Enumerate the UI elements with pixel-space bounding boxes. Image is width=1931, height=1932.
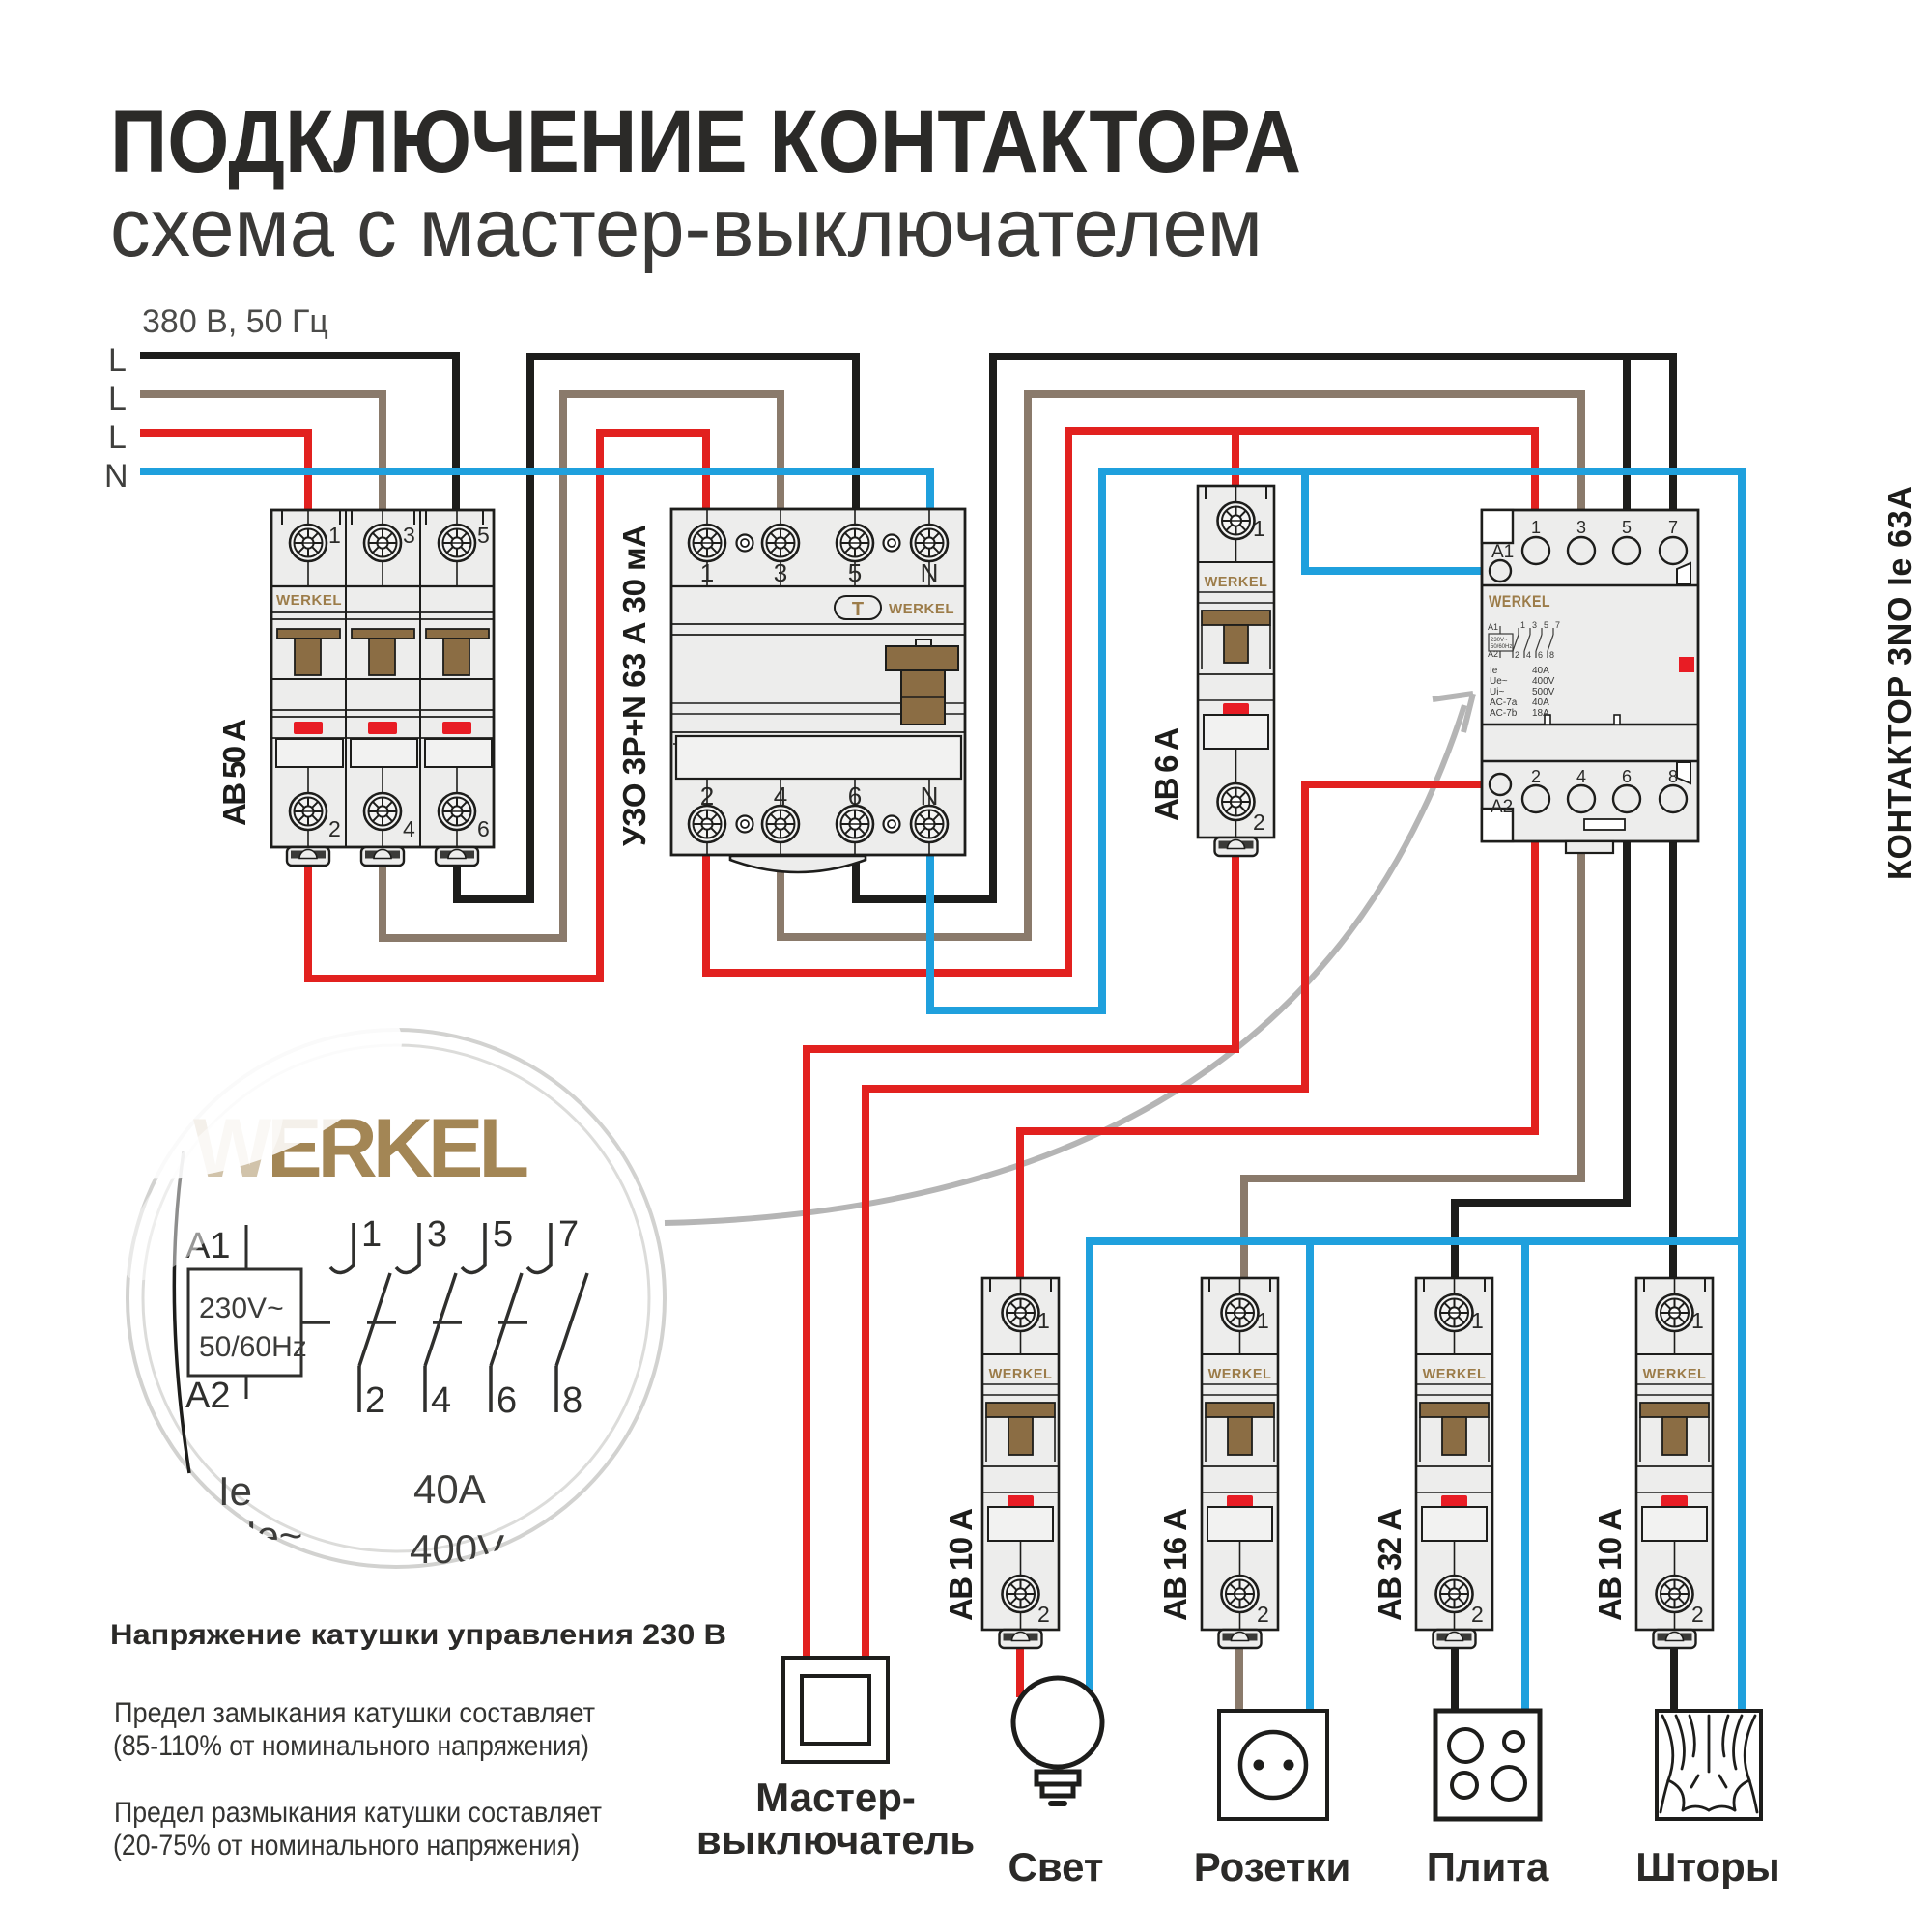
svg-text:2: 2 xyxy=(328,816,341,841)
svg-text:4: 4 xyxy=(1576,767,1586,786)
svg-text:5: 5 xyxy=(1622,518,1632,537)
svg-text:L: L xyxy=(108,419,127,456)
svg-text:5: 5 xyxy=(1544,620,1548,630)
svg-text:(20-75% от номинального напряж: (20-75% от номинального напряжения) xyxy=(113,1830,580,1861)
svg-text:Шторы: Шторы xyxy=(1635,1844,1779,1889)
svg-text:6: 6 xyxy=(1622,767,1632,786)
svg-text:5: 5 xyxy=(493,1214,513,1255)
svg-text:1: 1 xyxy=(361,1214,382,1255)
svg-text:A2: A2 xyxy=(185,1376,230,1416)
svg-text:3: 3 xyxy=(1576,518,1586,537)
svg-text:50/60Hz: 50/60Hz xyxy=(199,1331,307,1363)
svg-text:АВ 32 А: АВ 32 А xyxy=(1372,1508,1407,1621)
svg-text:6: 6 xyxy=(477,816,490,841)
svg-text:АВ 16 А: АВ 16 А xyxy=(1157,1508,1193,1621)
svg-text:50/60Hz: 50/60Hz xyxy=(1491,644,1512,650)
svg-text:Розетки: Розетки xyxy=(1194,1844,1351,1889)
svg-text:40A: 40A xyxy=(1532,697,1549,708)
svg-text:Ie: Ie xyxy=(1490,666,1498,676)
svg-text:18A: 18A xyxy=(1532,708,1549,719)
svg-text:схема с мастер-выключателем: схема с мастер-выключателем xyxy=(110,182,1263,274)
svg-text:3: 3 xyxy=(403,523,415,548)
svg-text:Предел замыкания катушки соста: Предел замыкания катушки составляет xyxy=(114,1697,595,1729)
svg-text:Плита: Плита xyxy=(1427,1844,1549,1889)
svg-text:3: 3 xyxy=(1532,620,1537,630)
svg-text:T: T xyxy=(852,599,864,620)
svg-text:AC-7b: AC-7b xyxy=(1490,708,1518,719)
svg-text:6: 6 xyxy=(1538,650,1543,660)
svg-text:Мастер-: Мастер- xyxy=(755,1775,916,1820)
svg-text:7: 7 xyxy=(558,1214,579,1255)
svg-text:5: 5 xyxy=(477,523,490,548)
svg-text:4: 4 xyxy=(1526,650,1531,660)
svg-text:ПОДКЛЮЧЕНИЕ КОНТАКТОРА: ПОДКЛЮЧЕНИЕ КОНТАКТОРА xyxy=(110,93,1301,191)
svg-text:7: 7 xyxy=(1555,620,1560,630)
svg-text:АВ 10 А: АВ 10 А xyxy=(1592,1508,1628,1621)
svg-text:Ie: Ie xyxy=(218,1468,252,1514)
svg-text:4: 4 xyxy=(403,816,415,841)
svg-text:N: N xyxy=(921,558,939,587)
svg-text:40A: 40A xyxy=(1532,666,1549,676)
svg-text:2: 2 xyxy=(1531,767,1541,786)
svg-text:Свет: Свет xyxy=(1008,1844,1104,1889)
svg-text:L: L xyxy=(108,342,127,379)
svg-text:КОНТАКТОР 3NO Ie 63А: КОНТАКТОР 3NO Ie 63А xyxy=(1882,486,1918,880)
svg-text:8: 8 xyxy=(562,1380,582,1421)
svg-text:380 В, 50 Гц: 380 В, 50 Гц xyxy=(142,303,328,340)
svg-text:2: 2 xyxy=(1515,650,1519,660)
svg-text:1: 1 xyxy=(1520,620,1525,630)
svg-text:400V: 400V xyxy=(1532,676,1555,687)
svg-text:(85-110% от номинального напря: (85-110% от номинального напряжения) xyxy=(113,1730,589,1762)
svg-text:230V~: 230V~ xyxy=(1491,638,1508,643)
svg-text:8: 8 xyxy=(1549,650,1554,660)
svg-text:2: 2 xyxy=(365,1380,385,1421)
svg-text:L: L xyxy=(108,381,127,417)
svg-text:7: 7 xyxy=(1668,518,1678,537)
svg-text:6: 6 xyxy=(497,1380,517,1421)
svg-text:40A: 40A xyxy=(413,1466,486,1512)
svg-text:A1: A1 xyxy=(1491,542,1514,562)
svg-text:Ue~: Ue~ xyxy=(1490,676,1508,687)
svg-text:WERKEL: WERKEL xyxy=(1489,592,1550,611)
svg-text:3: 3 xyxy=(427,1214,447,1255)
svg-text:230V~: 230V~ xyxy=(199,1293,284,1324)
svg-text:АВ 6 А: АВ 6 А xyxy=(1149,727,1184,821)
svg-text:WERKEL: WERKEL xyxy=(276,592,342,609)
svg-text:A2: A2 xyxy=(1491,797,1513,817)
svg-text:WERKEL: WERKEL xyxy=(889,601,954,617)
svg-text:A1: A1 xyxy=(1488,622,1498,632)
svg-text:AC-7a: AC-7a xyxy=(1490,697,1518,708)
svg-text:1: 1 xyxy=(328,523,341,548)
svg-text:1: 1 xyxy=(1531,518,1541,537)
svg-text:Ui~: Ui~ xyxy=(1490,687,1504,697)
svg-text:3: 3 xyxy=(774,558,787,587)
svg-text:N: N xyxy=(104,458,128,495)
svg-text:A2: A2 xyxy=(1488,649,1498,659)
svg-text:АВ 10 А: АВ 10 А xyxy=(943,1508,979,1621)
svg-text:500V: 500V xyxy=(1532,687,1555,697)
svg-text:УЗО 3P+N 63 А 30 мА: УЗО 3P+N 63 А 30 мА xyxy=(616,525,652,846)
svg-text:4: 4 xyxy=(431,1380,451,1421)
svg-text:Предел размыкания катушки сост: Предел размыкания катушки составляет xyxy=(114,1797,602,1829)
svg-text:Напряжение катушки управления: Напряжение катушки управления 230 В xyxy=(110,1619,726,1651)
svg-text:АВ 50 А: АВ 50 А xyxy=(216,719,252,826)
svg-text:выключатель: выключатель xyxy=(696,1817,975,1862)
svg-text:8: 8 xyxy=(1668,767,1678,786)
svg-text:5: 5 xyxy=(848,558,862,587)
svg-text:1: 1 xyxy=(700,558,714,587)
